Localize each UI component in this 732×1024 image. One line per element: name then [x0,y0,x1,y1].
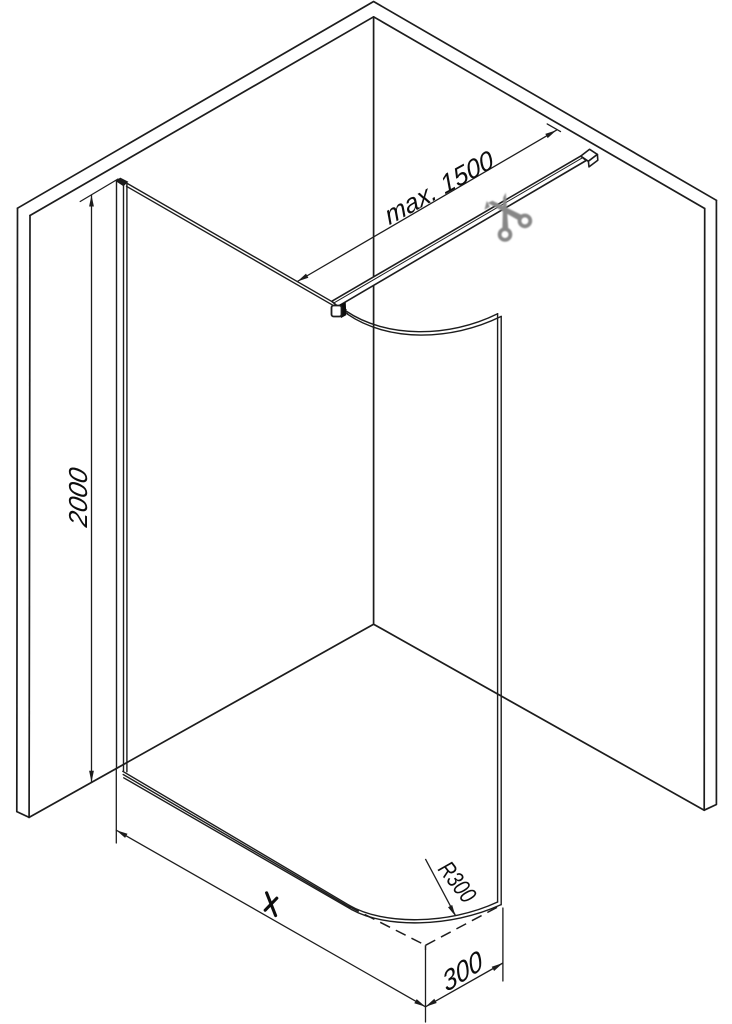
svg-text:2000: 2000 [63,465,93,530]
